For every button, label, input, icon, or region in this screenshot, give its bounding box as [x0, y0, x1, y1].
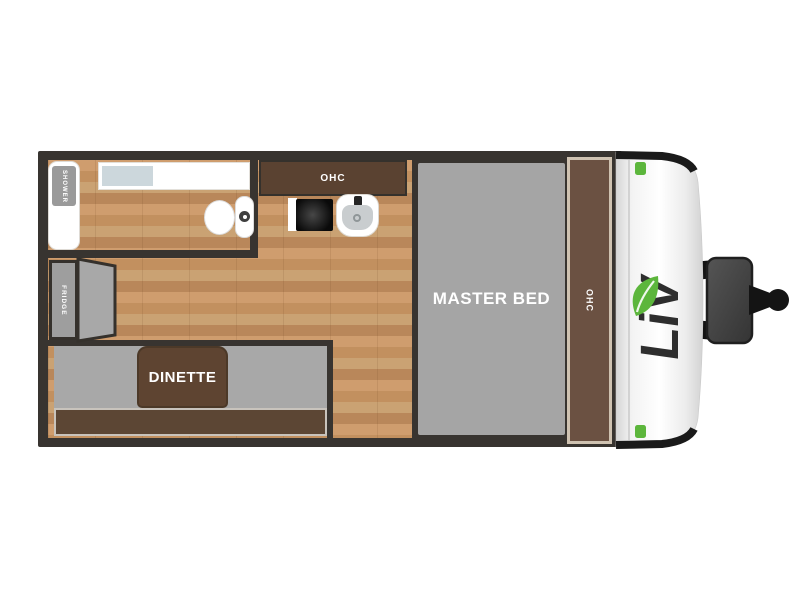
toilet-bowl — [204, 200, 235, 235]
dinette-backrest — [54, 408, 327, 436]
counter-sink-inset — [102, 166, 153, 186]
front-ohc-label: OHC — [585, 289, 595, 312]
sink-drain — [353, 214, 361, 222]
toilet-flush-button — [239, 211, 250, 222]
bathroom-wall-horizontal — [48, 250, 258, 258]
fridge: FRIDGE — [49, 260, 78, 340]
hitch-tongue-box — [707, 258, 752, 343]
toilet-tank — [235, 196, 254, 238]
floorplan: SHOWER OHC FRIDGE DINETTE MASTER BED OHC — [38, 151, 622, 447]
hitch-ball — [767, 289, 789, 311]
hitch — [693, 258, 789, 343]
marker-light-bottom — [635, 425, 646, 438]
bathroom-counter — [98, 162, 250, 190]
trailer-front: LiV — [610, 140, 800, 460]
master-bed: MASTER BED — [418, 163, 565, 435]
shower: SHOWER — [48, 161, 80, 250]
shower-pan: SHOWER — [52, 166, 76, 206]
fridge-label: FRIDGE — [60, 285, 67, 316]
front-overhead-cabinet: OHC — [567, 157, 612, 444]
dinette-table: DINETTE — [137, 346, 228, 408]
sink — [336, 194, 379, 237]
marker-light-top — [635, 162, 646, 175]
kitchen-ohc-label: OHC — [320, 173, 345, 184]
shower-label: SHOWER — [61, 170, 67, 203]
master-bed-label: MASTER BED — [433, 289, 550, 309]
dinette-label: DINETTE — [149, 369, 217, 386]
dinette-wall-right — [327, 340, 333, 438]
kitchen-overhead-cabinet: OHC — [259, 160, 407, 196]
cooktop — [296, 199, 333, 231]
